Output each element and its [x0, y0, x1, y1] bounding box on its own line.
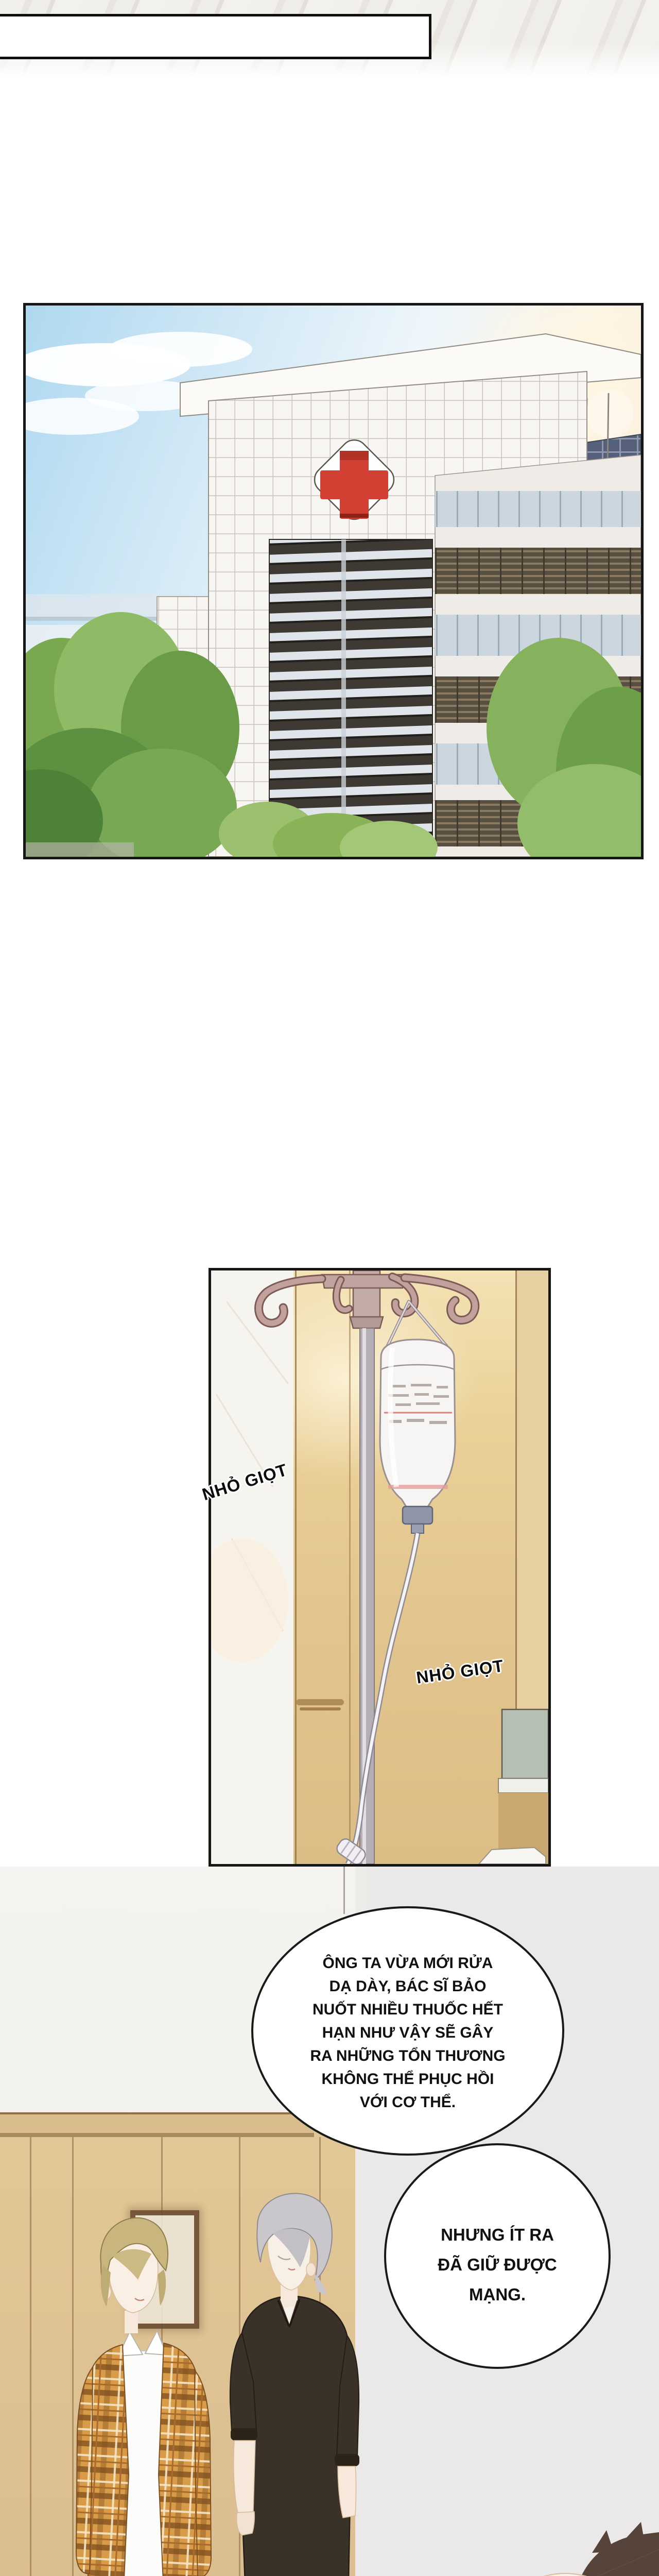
speech-bubble-1: ÔNG TA VỪA MỚI RỬA DẠ DÀY, BÁC SĨ BẢO NU…: [251, 1906, 564, 2156]
iv-room-background: [211, 1270, 548, 1864]
speech-bubble-2: NHƯNG ÍT RA ĐÃ GIỮ ĐƯỢC MẠNG.: [384, 2143, 611, 2369]
comic-page: NHỎ GIỌT NHỎ GIỌT: [0, 0, 659, 2576]
speech-bubble-2-text: NHƯNG ÍT RA ĐÃ GIỮ ĐƯỢC MẠNG.: [438, 2202, 557, 2310]
credit-box: [0, 14, 431, 59]
hospital-art: [26, 306, 641, 857]
panel-hospital-exterior: [23, 303, 644, 859]
visitor-silver: [230, 2193, 359, 2576]
panel-iv-drip: [209, 1268, 551, 1867]
iv-art: [211, 1270, 548, 1864]
visitor-blond: [76, 2218, 211, 2576]
speech-bubble-1-text: ÔNG TA VỪA MỚI RỬA DẠ DÀY, BÁC SĨ BẢO NU…: [310, 1948, 505, 2114]
